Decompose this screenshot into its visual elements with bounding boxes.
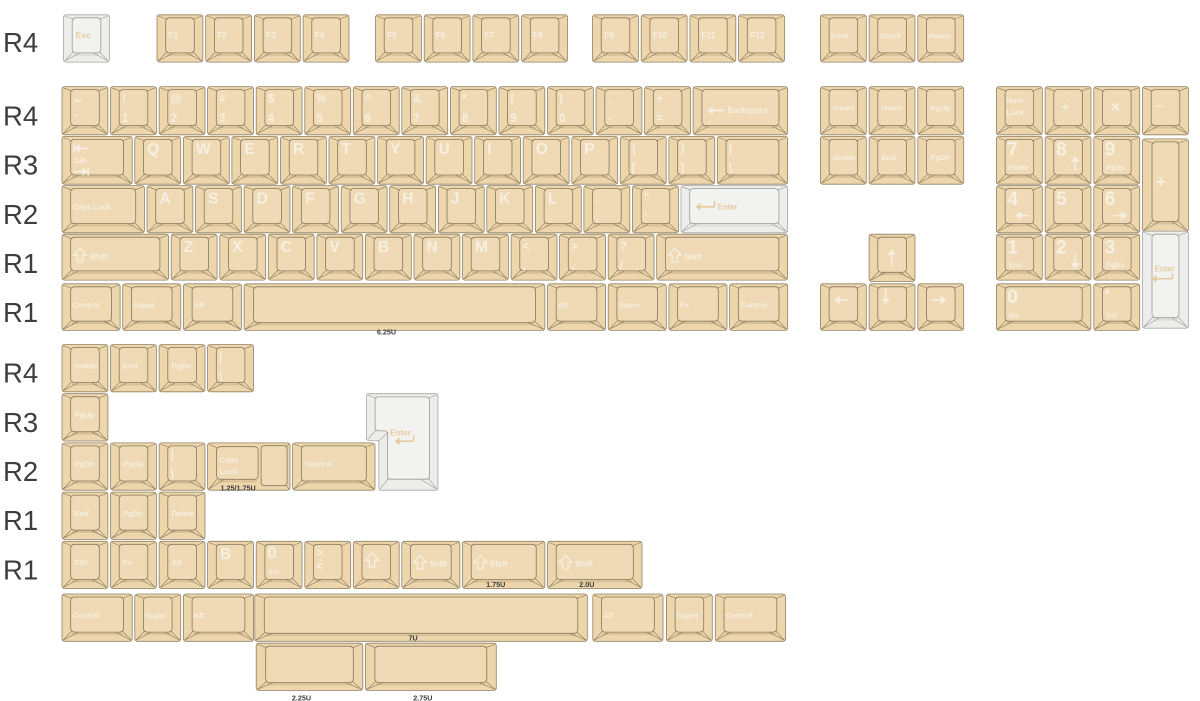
svg-text:`: `	[74, 112, 78, 127]
svg-text:Backspace: Backspace	[728, 106, 769, 115]
svg-text:R2: R2	[3, 199, 38, 230]
svg-text:4: 4	[268, 113, 275, 125]
svg-text:2: 2	[1056, 238, 1067, 259]
svg-text:;: ;	[595, 212, 599, 224]
svg-text:Ctrl: Ctrl	[75, 558, 88, 567]
svg-text:^: ^	[365, 93, 372, 105]
svg-text:End: End	[1009, 263, 1022, 270]
svg-text:F: F	[305, 190, 314, 207]
svg-text:Lock: Lock	[1006, 108, 1025, 117]
svg-text:3: 3	[1105, 238, 1116, 259]
svg-text:Delete: Delete	[75, 361, 98, 370]
svg-text:PgDn: PgDn	[75, 460, 95, 469]
svg-text:PgUp: PgUp	[123, 460, 143, 469]
svg-text:PgUp: PgUp	[75, 411, 95, 420]
svg-text:5: 5	[316, 113, 323, 125]
svg-text:9: 9	[510, 113, 516, 125]
svg-text:5: 5	[1056, 189, 1067, 210]
svg-text:×: ×	[1111, 99, 1120, 116]
svg-text:Caps: Caps	[220, 456, 239, 465]
svg-text:F10: F10	[653, 30, 668, 40]
svg-text:R1: R1	[3, 248, 38, 279]
svg-text:F2: F2	[217, 30, 227, 40]
svg-text:Num: Num	[1006, 96, 1023, 105]
svg-text:": "	[644, 192, 649, 204]
svg-text:Alt: Alt	[194, 301, 205, 310]
svg-text:R2: R2	[3, 456, 38, 487]
svg-text:F9: F9	[604, 30, 614, 40]
svg-text:G: G	[354, 190, 366, 207]
svg-text:3: 3	[219, 113, 225, 125]
svg-text:F8: F8	[533, 30, 543, 40]
svg-text:Ins: Ins	[1009, 312, 1019, 319]
svg-text:7: 7	[413, 113, 419, 125]
svg-text:{: {	[632, 143, 637, 155]
svg-text:PgUp: PgUp	[1106, 165, 1124, 172]
svg-text:2.0U: 2.0U	[579, 580, 594, 589]
svg-text:R4: R4	[3, 100, 38, 131]
svg-text:Control: Control	[740, 301, 767, 310]
svg-text:N: N	[427, 239, 438, 256]
svg-text:<: <	[316, 561, 323, 573]
svg-text:Control: Control	[305, 460, 332, 469]
svg-text:End: End	[123, 361, 138, 370]
svg-text:R1: R1	[3, 554, 38, 585]
svg-text:PgDn: PgDn	[123, 509, 143, 518]
svg-text:B: B	[378, 239, 389, 256]
svg-text:(: (	[510, 93, 514, 105]
svg-text:Home: Home	[882, 103, 903, 112]
svg-text:|: |	[729, 143, 732, 155]
svg-text:Delete: Delete	[833, 153, 856, 162]
svg-text:%: %	[316, 93, 326, 105]
svg-text:Pause: Pause	[928, 32, 950, 41]
svg-text:PgUp: PgUp	[930, 103, 950, 112]
svg-text:Enter: Enter	[718, 202, 738, 211]
svg-text:1: 1	[122, 113, 129, 125]
svg-text:?: ?	[620, 241, 627, 253]
svg-text:9: 9	[1105, 140, 1116, 161]
svg-text:Shift: Shift	[429, 560, 447, 569]
svg-text:): )	[559, 93, 563, 105]
svg-text:Esc: Esc	[76, 30, 92, 40]
svg-text:Tab: Tab	[74, 156, 87, 165]
svg-text:1: 1	[1007, 238, 1018, 259]
svg-text:2.75U: 2.75U	[413, 694, 432, 701]
svg-text:V: V	[329, 239, 340, 256]
svg-text:Home: Home	[1009, 165, 1029, 172]
svg-text:Control: Control	[73, 611, 100, 620]
svg-text:7: 7	[1007, 140, 1018, 161]
svg-text:Super: Super	[677, 611, 699, 620]
svg-text:Shift: Shift	[575, 560, 593, 569]
svg-text:6: 6	[1105, 189, 1116, 210]
svg-text:7U: 7U	[408, 634, 417, 643]
svg-text:Super: Super	[133, 301, 155, 310]
svg-text:F12: F12	[750, 30, 765, 40]
svg-text:P: P	[584, 141, 594, 158]
svg-text:!: !	[122, 93, 126, 105]
svg-text:4: 4	[1007, 189, 1018, 210]
svg-text:F4: F4	[315, 30, 325, 40]
svg-text:6.25U: 6.25U	[377, 328, 396, 337]
svg-text:Shift: Shift	[684, 252, 702, 261]
svg-text:R4: R4	[3, 27, 38, 58]
svg-text:PgDn: PgDn	[1106, 263, 1124, 270]
svg-text:Super: Super	[619, 301, 641, 310]
svg-text:R1: R1	[3, 297, 38, 328]
svg-text::: :	[595, 192, 599, 204]
svg-text:End: End	[882, 153, 897, 162]
svg-text:1.25/1.75U: 1.25/1.75U	[221, 483, 256, 492]
svg-text:O: O	[536, 141, 548, 158]
svg-text:Fn: Fn	[679, 301, 689, 310]
svg-text:,: ,	[523, 261, 526, 273]
svg-text:–: –	[1156, 98, 1163, 113]
svg-text:D: D	[257, 190, 268, 207]
svg-text:R3: R3	[3, 150, 38, 181]
svg-text:F1: F1	[169, 30, 179, 40]
svg-text:L: L	[548, 190, 557, 207]
svg-text:M: M	[475, 239, 488, 256]
svg-text:+: +	[1156, 172, 1166, 191]
svg-text:Alt: Alt	[558, 301, 569, 310]
svg-text:|: |	[219, 351, 222, 363]
svg-text:K: K	[499, 190, 511, 207]
svg-text:H: H	[402, 190, 413, 207]
svg-text:B: B	[220, 546, 231, 563]
svg-text:<: <	[523, 241, 530, 253]
svg-text:PgDn: PgDn	[930, 153, 950, 162]
svg-text:>: >	[316, 548, 323, 560]
svg-text:0: 0	[267, 543, 276, 562]
svg-text:T: T	[342, 141, 352, 158]
svg-text:J: J	[451, 190, 460, 207]
svg-text:÷: ÷	[1061, 99, 1069, 114]
svg-text:X: X	[232, 239, 243, 256]
svg-text:R: R	[293, 141, 304, 158]
svg-text:Enter: Enter	[390, 428, 412, 437]
svg-text:R4: R4	[3, 358, 38, 389]
svg-text:F11: F11	[701, 30, 715, 40]
svg-text:]: ]	[680, 163, 684, 175]
svg-text:F6: F6	[436, 30, 446, 40]
svg-text:F7: F7	[484, 30, 494, 40]
svg-text:Lock: Lock	[220, 467, 239, 476]
svg-text:W: W	[196, 141, 211, 158]
svg-text:A: A	[160, 190, 171, 207]
svg-text:Q: Q	[147, 141, 159, 158]
svg-text:Alt: Alt	[603, 611, 614, 620]
svg-text:Shift: Shift	[490, 560, 508, 569]
svg-text:Scroll: Scroll	[880, 32, 901, 41]
svg-text:6: 6	[365, 113, 371, 125]
svg-text:I: I	[487, 141, 491, 158]
svg-text:}: }	[680, 143, 685, 155]
svg-text:Enter: Enter	[1155, 265, 1175, 274]
svg-text:=: =	[656, 113, 663, 125]
svg-text:Ins: Ins	[269, 569, 279, 576]
svg-text:R3: R3	[3, 407, 38, 438]
svg-text:|: |	[171, 450, 174, 462]
svg-text:#: #	[219, 93, 226, 105]
svg-text:[: [	[632, 163, 636, 175]
svg-text:~: ~	[74, 93, 83, 110]
svg-text:2.25U: 2.25U	[292, 694, 311, 701]
svg-text:C: C	[281, 239, 292, 256]
svg-text:F3: F3	[266, 30, 276, 40]
svg-text:>: >	[571, 241, 578, 253]
svg-text:0: 0	[559, 113, 565, 125]
svg-text:U: U	[439, 141, 450, 158]
svg-text:Alt: Alt	[194, 611, 205, 620]
svg-text:Z: Z	[184, 239, 194, 256]
svg-text:2: 2	[171, 113, 177, 125]
svg-text:.: .	[571, 261, 574, 273]
svg-text:8: 8	[462, 113, 469, 125]
svg-text:Insert: Insert	[833, 103, 854, 112]
svg-text:Fn: Fn	[123, 558, 133, 567]
svg-text:Control: Control	[726, 611, 753, 620]
svg-text:S: S	[208, 190, 218, 207]
svg-text:End: End	[75, 509, 90, 518]
svg-text:8: 8	[1056, 140, 1067, 161]
svg-text:Super: Super	[145, 611, 167, 620]
svg-text:E: E	[244, 141, 254, 158]
svg-text:Y: Y	[390, 141, 401, 158]
svg-text:Control: Control	[73, 301, 100, 310]
svg-text:Print: Print	[831, 32, 849, 41]
svg-text:0: 0	[1007, 287, 1018, 308]
svg-text:$: $	[268, 93, 275, 105]
svg-text:*: *	[462, 93, 467, 105]
svg-text:Delete: Delete	[172, 509, 195, 518]
svg-text:@: @	[171, 93, 182, 105]
svg-text:Shift: Shift	[90, 252, 108, 261]
svg-text:-: -	[608, 113, 612, 125]
svg-text:Del: Del	[1106, 312, 1117, 319]
svg-text:&: &	[413, 93, 421, 105]
svg-text:_: _	[607, 93, 615, 105]
svg-text:F5: F5	[387, 30, 397, 40]
svg-text:+: +	[656, 93, 663, 105]
svg-text:R1: R1	[3, 505, 38, 536]
svg-text:Alt: Alt	[172, 558, 183, 567]
svg-text:Caps Lock: Caps Lock	[73, 202, 112, 211]
svg-text:PgDn: PgDn	[172, 361, 192, 370]
svg-text:1.75U: 1.75U	[486, 580, 505, 589]
svg-text:': '	[644, 212, 647, 224]
